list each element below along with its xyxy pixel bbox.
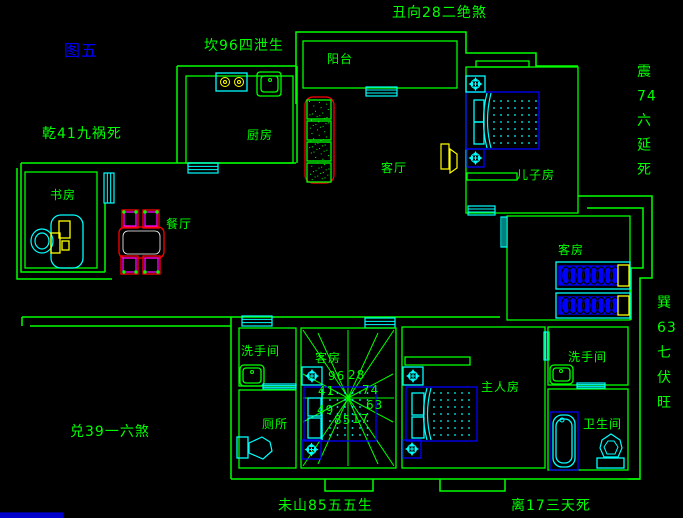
compass-room-part-dot [329,399,331,401]
compass-room-part-dot [344,427,346,429]
kitchen-part [186,76,293,163]
living-room-part-speck [310,128,311,129]
dining-part [156,211,158,213]
sons-room-part-dot [521,107,523,109]
sons-room-part-dot [528,121,530,123]
sons-room-part [466,67,578,213]
dining-part [135,211,137,213]
living-room-part-speck [319,115,320,116]
study-door [104,173,114,203]
dining-part [144,271,146,273]
compass-room-part-dot [352,406,354,408]
living-room-part-speck [326,150,327,151]
sons-room-part-dot [535,128,537,130]
living-room-part-speck [318,121,319,122]
compass-number-17: 17 [352,412,369,426]
living-room-part [307,163,331,182]
living-room-part-speck [320,140,321,141]
living-room-part-speck [310,174,311,175]
label-xun-4: 旺 [657,395,672,411]
living-room-part-speck [312,179,313,180]
dining-part [145,212,157,226]
guest-room-right-part [559,297,617,314]
label-zhen-0: 震 [637,64,652,80]
label-toilet: 厕所 [262,417,288,431]
compass-room-part-dot [352,427,354,429]
master-room-part-dot [440,427,442,429]
sons-room-part-dot [507,121,509,123]
outer-walls-part [17,168,112,279]
sons-room [466,61,578,215]
sons-room-part-dot [500,121,502,123]
living-room-part [307,121,331,140]
living-room-part-speck [317,129,318,130]
living-room-part-speck [323,126,324,127]
living-room-part-speck [327,175,328,176]
kitchen [186,72,293,173]
sons-room-part-dot [521,142,523,144]
label-zhen-2: 六 [637,113,652,129]
compass-room-part-dot [344,399,346,401]
compass-number-63: 63 [366,398,383,412]
sons-room-part-dot [507,114,509,116]
living-room-part-speck [322,178,323,179]
dining-part [157,271,159,273]
living-room-part-speck [326,169,327,170]
master-room-part-dot [447,427,449,429]
master-room-part-dot [454,434,456,436]
label-bathroom: 卫生间 [583,417,622,431]
living-room-part-speck [317,162,318,163]
living-room-part-speck [313,171,314,172]
sons-room-part-dot [514,114,516,116]
living-room-part-speck [313,125,314,126]
master-room-part-dot [440,399,442,401]
compass-room-part-dot [344,392,346,394]
master-room-part-dot [440,413,442,415]
master-room-part-dot [447,392,449,394]
sons-room-part-dot [493,135,495,137]
living-room-part-speck [324,131,325,132]
compass-room-part-dot [337,427,339,429]
master-room-part-dot [447,434,449,436]
living-room-part-speck [328,168,329,169]
sons-room-part-dot [514,142,516,144]
living-room-part-speck [322,145,323,146]
shelf [467,173,517,180]
living-room-part-speck [317,176,318,177]
living-room-part-speck [322,159,323,160]
sons-room-part-dot [535,114,537,116]
living-room-part-speck [321,167,322,168]
dining-part [144,211,146,213]
living-room-part-speck [320,173,321,174]
living-room-part-speck [325,123,326,124]
compass-room-part [308,418,321,438]
living-room-part-speck [316,170,317,171]
label-master: 主人房 [481,379,520,394]
dining [119,210,164,274]
sons-room-part-dot [528,100,530,102]
label-li: 离17三天死 [511,497,591,514]
living-room-part-speck [315,124,316,125]
label-wei: 未山85五五生 [278,498,373,514]
sons-room-part-dot [507,142,509,144]
living-room-part-speck [315,176,316,177]
master-room-part-dot [454,406,456,408]
sons-room-part [488,93,492,148]
label-xun-1: 63 [657,320,677,336]
master-room-part-dot [468,406,470,408]
toilet-bowl [249,437,272,459]
label-son-room: 儿子房 [516,167,555,182]
master-room-part [412,393,424,415]
master-room-part-dot [454,413,456,415]
sons-room-part-dot [507,135,509,137]
living-room-part-speck [313,138,314,139]
living-room-part-speck [319,135,320,136]
master-room-part [428,388,432,440]
sons-room-part-dot [514,121,516,123]
master-room-part-dot [447,406,449,408]
label-living: 客厅 [381,160,407,175]
living-room-part-speck [326,137,327,138]
master-room-part-dot [440,434,442,436]
dining-part [135,271,137,273]
living-room-part-speck [323,139,324,140]
living-room-part-speck [324,164,325,165]
living-room-part-speck [309,101,310,102]
living-room-part-speck [328,155,329,156]
figure-label: 图五 [64,41,98,60]
sons-room-part-dot [535,107,537,109]
sons-room-part-dot [528,114,530,116]
outer-walls-part [325,479,373,491]
living-room-part-speck [324,118,325,119]
living-room-part [307,142,331,161]
living-room-part-speck [311,120,312,121]
label-xun-0: 巽 [657,295,672,311]
master-room-part-dot [468,427,470,429]
living-room-part-speck [310,160,311,161]
living-room-part-speck [326,104,327,105]
master-room-part-dot [461,427,463,429]
master-room-part-dot [433,434,435,436]
sons-room-part-dot [493,128,495,130]
living-room-part [450,149,457,173]
living-room-part-speck [314,152,315,153]
shelf [405,357,470,365]
sons-room-part-dot [493,121,495,123]
master-room-part-dot [447,413,449,415]
master-room-part-dot [454,399,456,401]
label-washroom-left: 洗手间 [241,344,280,358]
balcony [303,41,457,96]
living-room-part-speck [309,114,310,115]
living-room-part-speck [311,133,312,134]
kitchen-part [221,78,230,87]
compass-room-part-dot [359,434,361,436]
label-guest-right: 客房 [558,242,584,257]
living-room-part-speck [315,144,316,145]
sons-room-part-dot [514,107,516,109]
compass-room-part-dot [337,406,339,408]
living-room-part-speck [311,166,312,167]
master-room-part-dot [447,399,449,401]
toilet-base [597,458,624,468]
label-qian: 乾41九祸死 [42,126,122,142]
label-balcony: 阳台 [327,51,353,66]
compass-number-28: 28 [348,368,365,382]
sons-room-part-dot [493,114,495,116]
sons-room-part-dot [528,135,530,137]
shelf [476,61,529,67]
sons-room-part-dot [535,135,537,137]
living-room-part-speck [317,116,318,117]
compass-room-part-dot [337,399,339,401]
fengshui-labels: 坎96四泄生丑向28二绝煞乾41九祸死兑39一六煞未山85五五生离17三天死震7… [42,5,677,514]
sons-room-part-dot [500,100,502,102]
master-room-part-dot [433,413,435,415]
sons-room-part-dot [514,135,516,137]
tv [441,144,449,169]
corridor-window [365,318,395,328]
kitchen-part [235,78,244,87]
washroom-right-part [560,370,563,373]
sons-room-part-dot [521,114,523,116]
guest-door [501,217,507,247]
dining-part [123,271,125,273]
living-room-part-speck [313,105,314,106]
label-zhen-1: 74 [637,89,657,105]
outer-walls-part [440,479,505,491]
label-xun-3: 伏 [657,370,672,386]
living-room-part-speck [321,107,322,108]
living-room-part-speck [328,122,329,123]
master-room-part [412,417,424,438]
compass-room-part-dot [344,434,346,436]
master-room-part-dot [461,420,463,422]
compass-room-part-dot [352,392,354,394]
kitchen-part [269,79,272,82]
study [25,172,114,268]
corridor [242,316,395,328]
compass-number-74: 74 [362,383,379,397]
living-room-part-speck [323,172,324,173]
living-room-part-speck [310,141,311,142]
living-room-part-speck [312,113,313,114]
guest-room-right-part [559,266,617,285]
master-room-part-dot [454,420,456,422]
sons-room-part-dot [507,100,509,102]
sons-room-part-dot [500,114,502,116]
living-room-part-speck [324,177,325,178]
washroom-left-part [251,371,254,374]
master-room-part-dot [468,413,470,415]
living-room-part-speck [315,157,316,158]
living-room-part-speck [325,144,326,145]
study-part [62,241,69,250]
compass-room-part-dot [329,420,331,422]
label-xun-2: 七 [657,345,672,361]
master-room-part-dot [461,413,463,415]
sons-room-part-dot [521,100,523,102]
master-room-part-dot [433,399,435,401]
sons-room-part-dot [514,128,516,130]
master-room-part-dot [468,399,470,401]
sons-room-part-dot [500,135,502,137]
label-washroom-right: 洗手间 [568,350,607,364]
sons-room-part-dot [535,100,537,102]
master-room-part-dot [454,392,456,394]
study-part [59,221,70,238]
compass-room-part-dot [359,399,361,401]
compass-room-part-dot [344,406,346,408]
living-room-part-speck [324,151,325,152]
kitchen-part [238,81,241,84]
cad-floorplan-canvas: 阳台厨房客厅儿子房书房餐厅客房洗手间客房厕所主人房洗手间卫生间坎96四泄生丑向2… [0,0,683,518]
label-kitchen: 厨房 [247,127,273,142]
living-room-part-speck [319,148,320,149]
compass-room-part-dot [329,427,331,429]
compass-room-part-dot [359,392,361,394]
bathroom-part [556,419,572,463]
sons-room-part-dot [528,107,530,109]
master-room-part-dot [461,399,463,401]
master-room-part-dot [461,406,463,408]
master-room-part-dot [440,420,442,422]
floorplan-drawing: 阳台厨房客厅儿子房书房餐厅客房洗手间客房厕所主人房洗手间卫生间坎96四泄生丑向2… [0,0,683,518]
kitchen-part [224,81,227,84]
dining-part [123,258,136,272]
outer-walls-part [21,163,105,272]
sons-room-part-dot [528,128,530,130]
master-room-part-dot [454,427,456,429]
dining-part [124,212,136,226]
bathroom-part [604,441,618,454]
study-part [35,233,49,249]
sons-room-part-dot [507,128,509,130]
sons-room-part-dot [535,121,537,123]
master-room-part-dot [468,392,470,394]
living-room-part-speck [312,146,313,147]
living-room-part-speck [322,113,323,114]
compass-room-part-dot [359,427,361,429]
taskbar-strip [0,513,63,518]
master-room-part-dot [440,392,442,394]
compass-number-41: 41 [318,384,335,398]
compass-room-part-dot [352,399,354,401]
label-zhen-3: 延 [637,138,652,154]
label-zhen-4: 死 [637,162,652,178]
master-room-part-dot [447,420,449,422]
sons-room-part-dot [493,100,495,102]
living-room-part-speck [328,109,329,110]
sons-room-part-dot [521,135,523,137]
label-study: 书房 [50,187,76,202]
master-room-part-dot [461,434,463,436]
study-part [25,172,97,268]
compass-room-part-dot [359,406,361,408]
living-room-part-speck [309,147,310,148]
sons-room-part-dot [521,121,523,123]
sons-room-part-dot [507,107,509,109]
sons-room-part-dot [500,142,502,144]
living-room-part-speck [317,143,318,144]
sons-room-part-dot [493,142,495,144]
bottom-blue-strip [0,513,63,518]
label-dui: 兑39一六煞 [70,424,150,440]
sons-room-part-dot [535,142,537,144]
living-room-part-speck [318,168,319,169]
living-room-part-speck [328,142,329,143]
dining-part [123,231,160,254]
master-room-part-dot [433,392,435,394]
compass-room-part-dot [352,434,354,436]
label-dining: 餐厅 [166,216,192,231]
master-room-part-dot [433,420,435,422]
sons-room-part-dot [493,107,495,109]
compass-room-part-dot [337,392,339,394]
compass-room-part-dot [337,434,339,436]
compass-number-49: 49 [317,403,334,417]
master-room-part-dot [461,392,463,394]
living-room-part-speck [320,127,321,128]
living-room-part-speck [316,149,317,150]
label-guest-mid: 客房 [315,350,341,365]
living-room-part-speck [314,119,315,120]
living-room-part-speck [321,121,322,122]
sons-room-part-dot [528,142,530,144]
sons-room-part-dot [500,128,502,130]
sons-room-part-dot [521,128,523,130]
kitchen-window [188,163,218,173]
dining-part [145,258,158,272]
master-room-part-dot [433,427,435,429]
compass-room-part-dot [367,434,369,436]
living-room-part-speck [321,153,322,154]
sons-room-part-dot [500,107,502,109]
guest-room-right [501,216,630,320]
living-room-part-speck [315,111,316,112]
master-room-part-dot [440,406,442,408]
label-kan: 坎96四泄生 [204,38,284,54]
living-room-part-speck [327,117,328,118]
washroom-left [239,328,296,389]
compass-room-part-dot [329,434,331,436]
master-room [402,327,549,468]
sons-room-part-dot [514,100,516,102]
compass-number-96: 96 [328,369,345,383]
living-room-part-speck [311,152,312,153]
dining-part [123,211,125,213]
compass-room-part-dot [367,427,369,429]
master-room-part-dot [468,434,470,436]
master-room-part-dot [433,406,435,408]
living-room-part-speck [319,102,320,103]
master-room-part-dot [468,420,470,422]
label-chou: 丑向28二绝煞 [392,5,487,21]
compass-number-85: 85 [334,413,351,427]
